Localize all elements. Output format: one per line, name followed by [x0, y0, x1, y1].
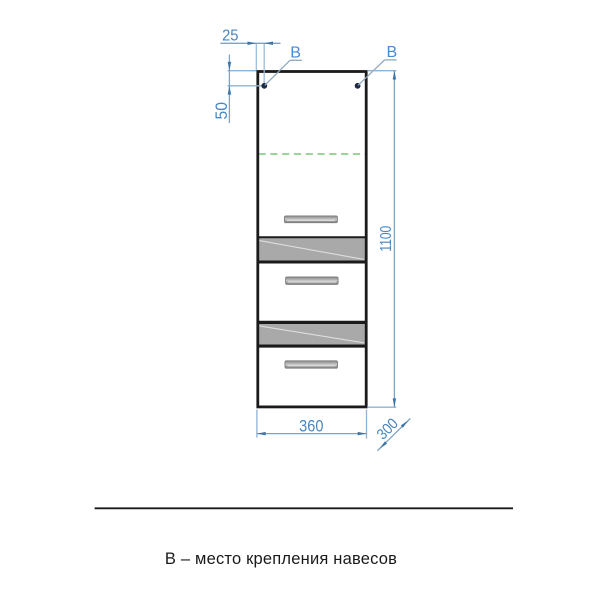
svg-text:В: В [386, 44, 397, 61]
svg-text:25: 25 [222, 27, 238, 44]
svg-text:300: 300 [374, 415, 402, 443]
svg-text:В – место крепления навесов: В – место крепления навесов [165, 550, 397, 568]
svg-text:1100: 1100 [376, 226, 394, 252]
svg-text:50: 50 [213, 102, 231, 119]
svg-text:360: 360 [299, 418, 324, 436]
svg-text:В: В [290, 45, 301, 62]
